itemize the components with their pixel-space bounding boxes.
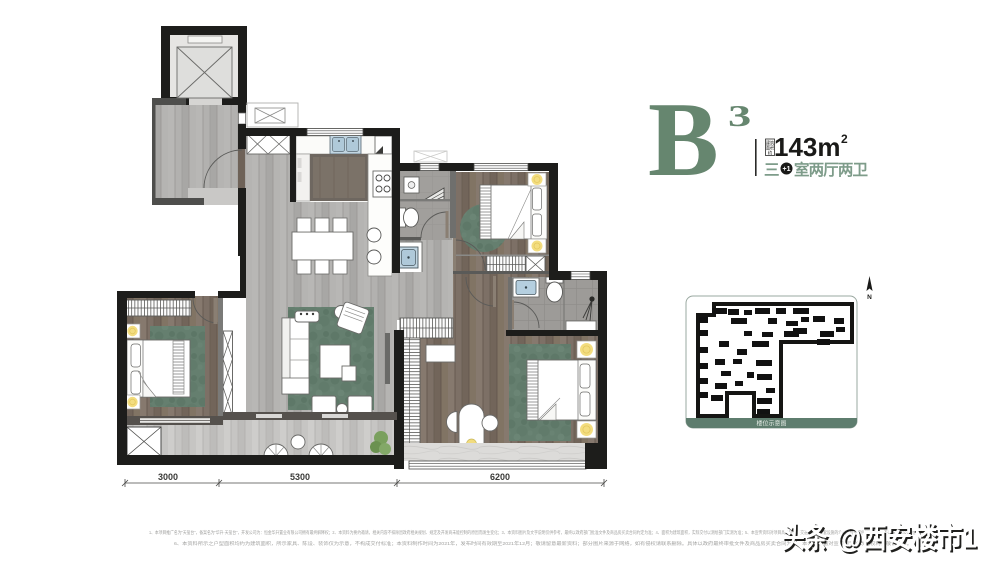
svg-text:6200: 6200 <box>490 472 510 482</box>
svg-text:3: 3 <box>728 99 751 134</box>
svg-text:2: 2 <box>841 132 848 146</box>
svg-text:5300: 5300 <box>290 472 310 482</box>
svg-text:143m: 143m <box>774 132 841 162</box>
svg-text:头条: 头条 <box>782 522 828 555</box>
svg-text:约: 约 <box>768 149 773 156</box>
svg-text:楼位示意图: 楼位示意图 <box>757 419 787 427</box>
svg-text:N: N <box>867 294 872 301</box>
svg-text:B: B <box>648 81 719 198</box>
svg-text:+1: +1 <box>783 166 791 173</box>
svg-text:3000: 3000 <box>158 472 178 482</box>
svg-text:三: 三 <box>764 162 780 179</box>
svg-text:室两厅两卫: 室两厅两卫 <box>794 160 868 179</box>
svg-text:@西安楼市1: @西安楼市1 <box>837 521 977 555</box>
